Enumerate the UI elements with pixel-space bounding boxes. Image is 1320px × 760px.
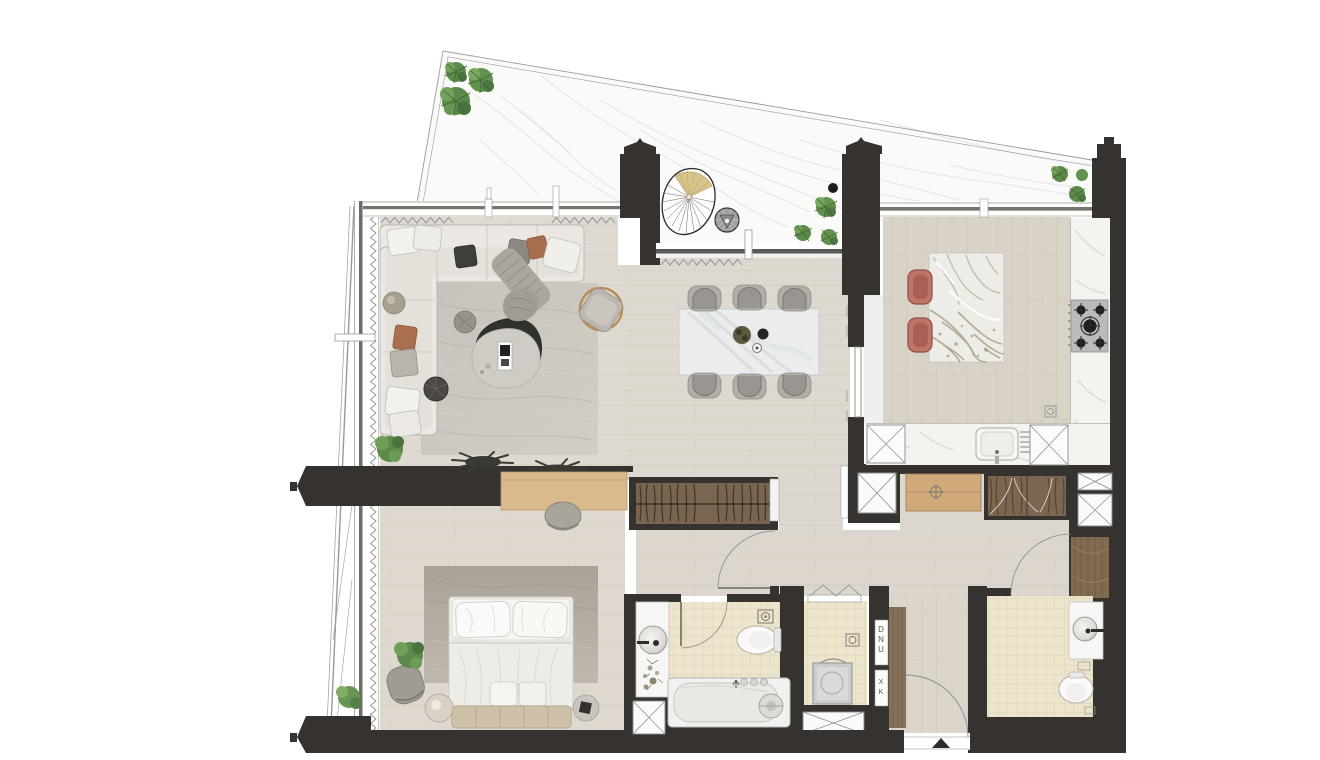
svg-text:X: X <box>879 679 884 686</box>
svg-text:U: U <box>878 645 884 654</box>
svg-text:N: N <box>878 635 884 644</box>
svg-text:K: K <box>879 689 884 696</box>
svg-text:D: D <box>878 625 884 634</box>
